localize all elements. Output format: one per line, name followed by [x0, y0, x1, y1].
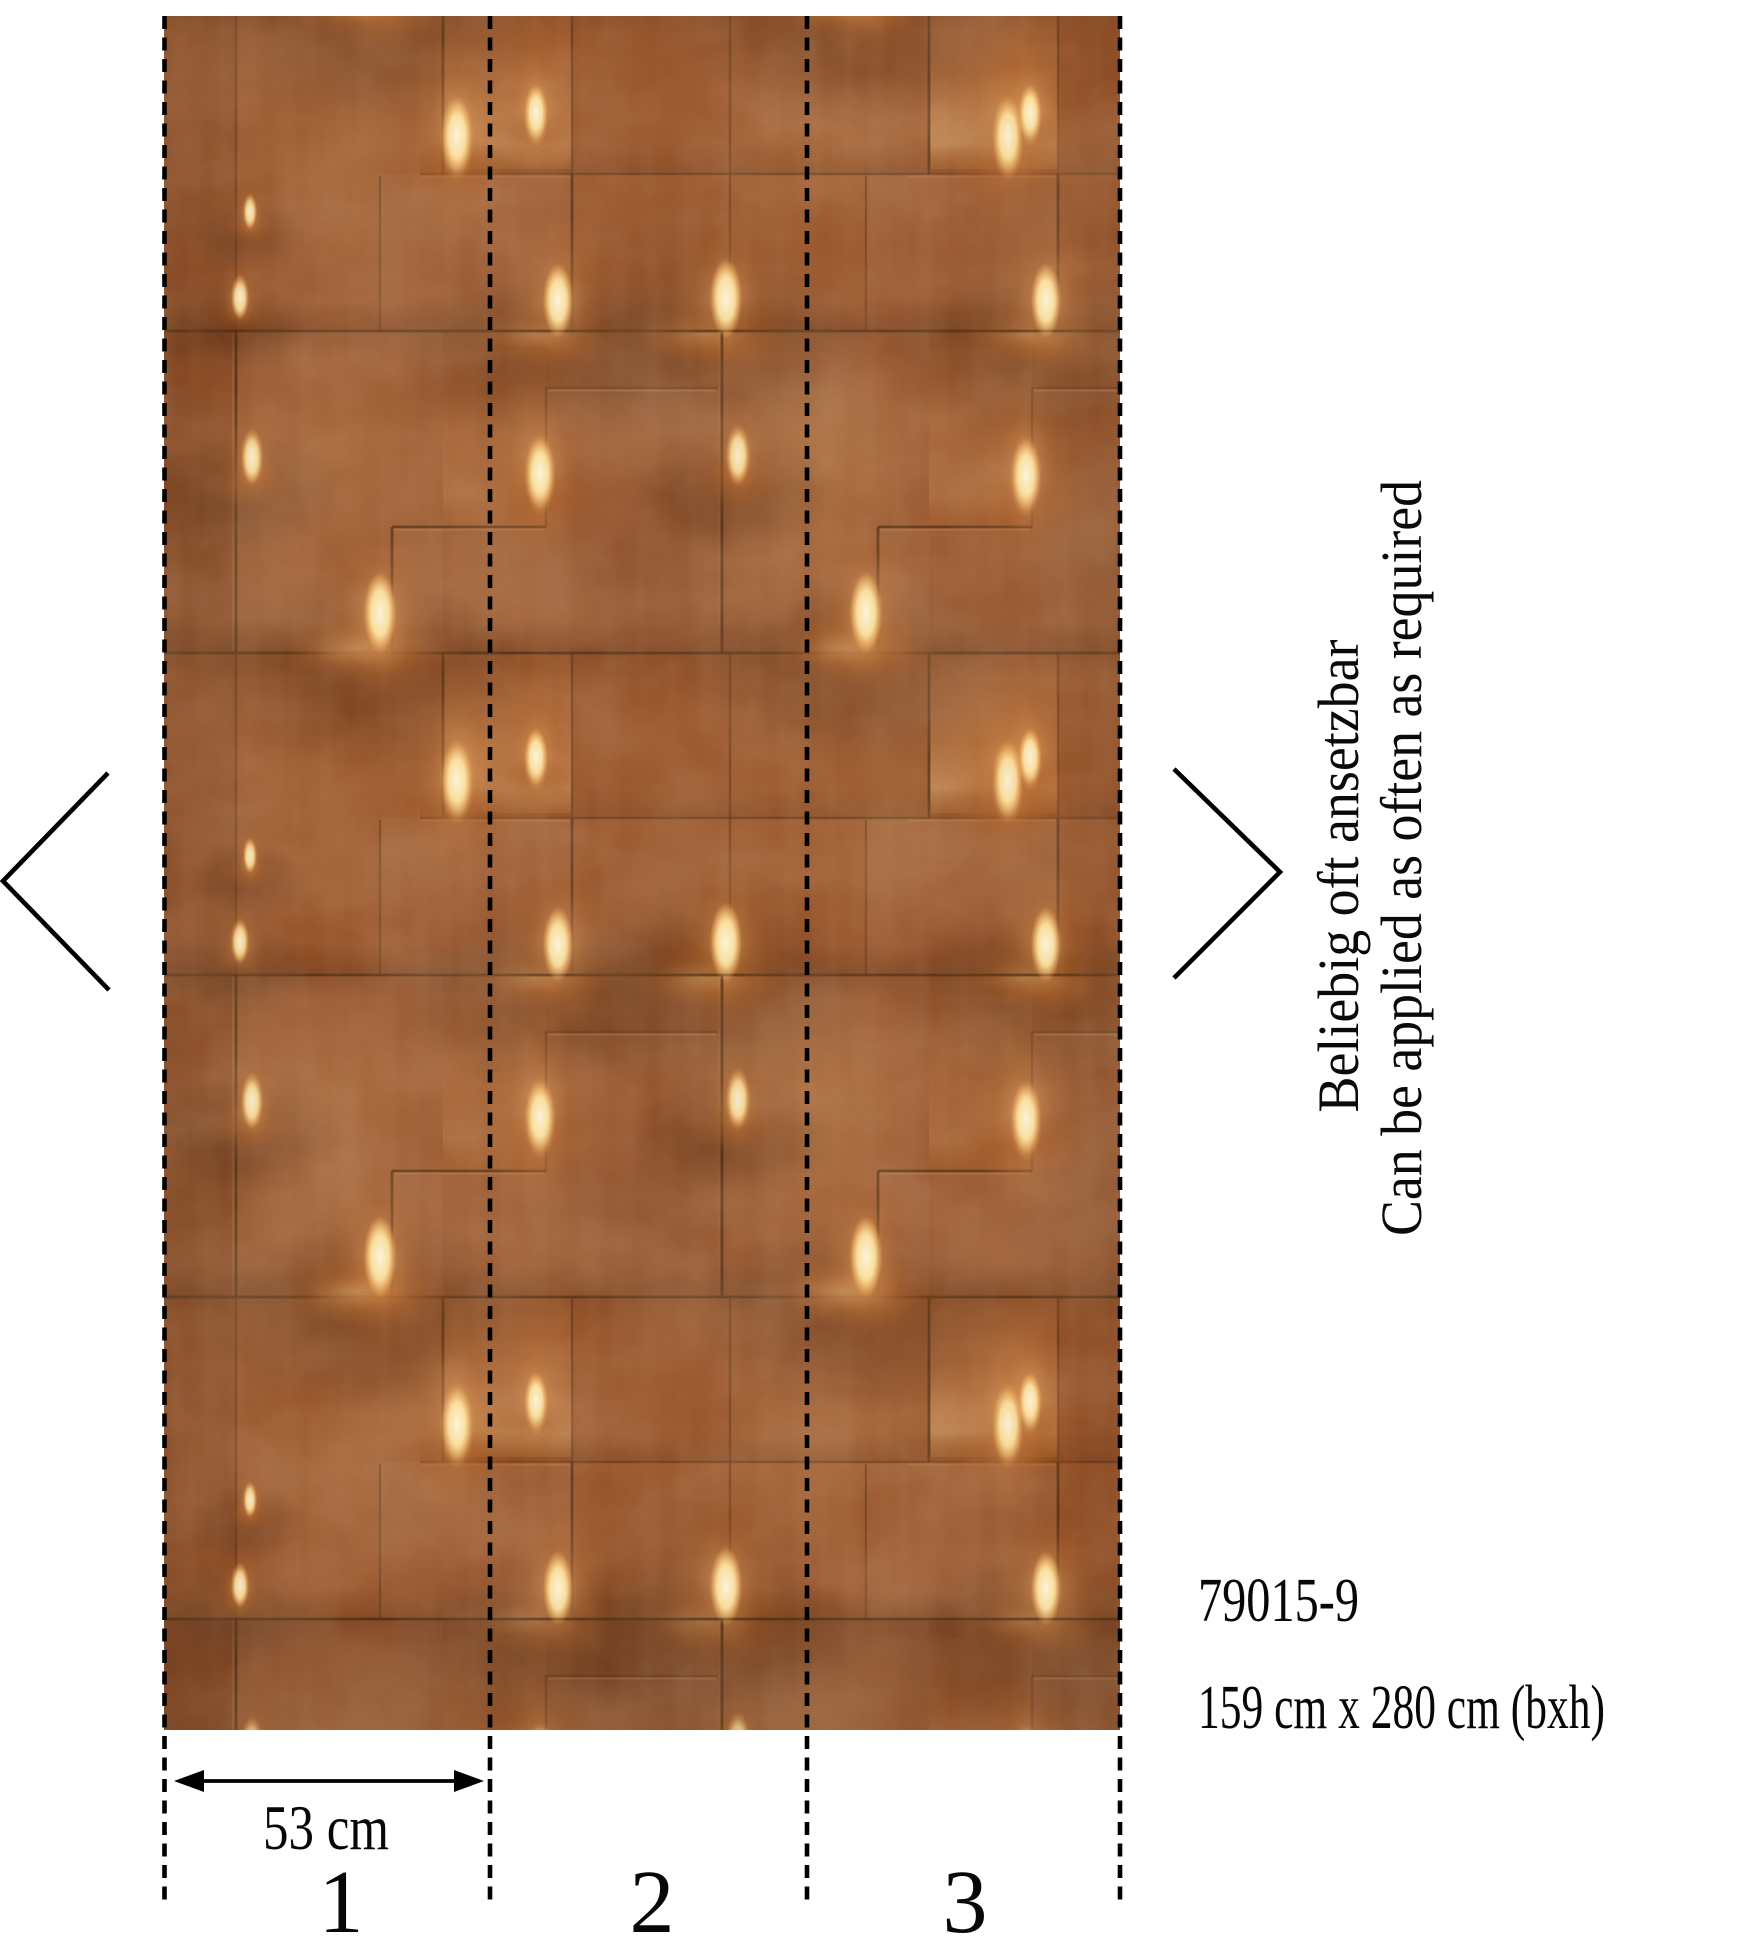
svg-text:1: 1: [319, 1853, 364, 1952]
svg-text:2: 2: [630, 1853, 675, 1952]
svg-text:79015-9: 79015-9: [1198, 1567, 1359, 1635]
svg-text:3: 3: [943, 1853, 988, 1952]
svg-text:Beliebig oft ansetzbar: Beliebig oft ansetzbar: [1306, 640, 1371, 1113]
svg-text:Can be applied as often as req: Can be applied as often as required: [1369, 480, 1434, 1236]
svg-text:159 cm x 280 cm (bxh): 159 cm x 280 cm (bxh): [1198, 1674, 1605, 1742]
